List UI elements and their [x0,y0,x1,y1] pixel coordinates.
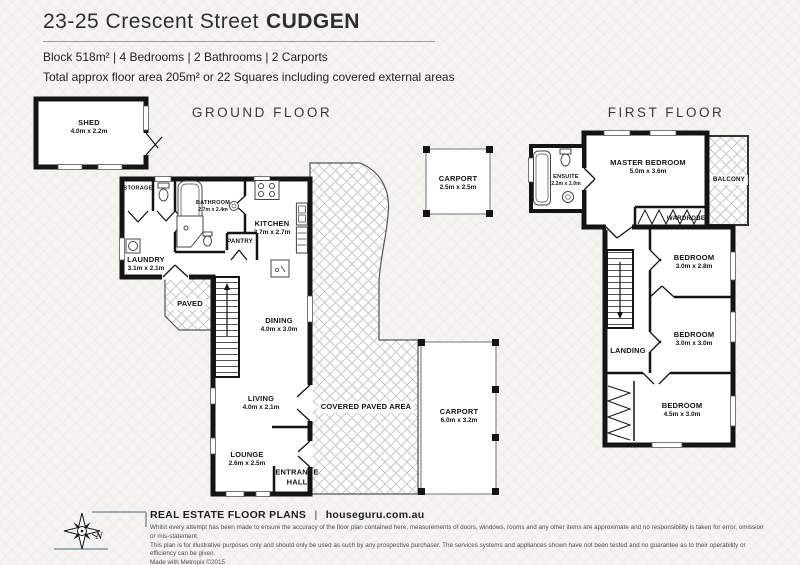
room-dims: 6.0m x 3.2m [440,417,478,425]
brand-name: REAL ESTATE FLOOR PLANS [150,509,306,521]
room-label-carport-side: CARPORT 6.0m x 3.2m [440,407,478,425]
room-label-shed: SHED 4.0m x 2.2m [71,118,108,136]
header: 23-25 Crescent StreetCUDGEN Block 518m² … [43,10,455,84]
room-label-landing: LANDING [610,346,646,356]
room-name: BALCONY [713,176,745,184]
compass-rose-icon [54,512,146,549]
covered-paved-area-hatch [310,163,418,494]
room-dims: 4.0m x 3.0m [261,326,298,334]
room-name: KITCHEN [254,219,291,229]
floor-plan-drawing [0,0,800,565]
room-label-entrance-hall: ENTRANCE HALL [270,467,324,487]
room-label-ensuite: ENSUITE 2.2m x 2.0m [551,174,580,188]
compass-north-label: N [96,532,103,542]
street-address: 23-25 Crescent Street [43,10,259,33]
brand-line: REAL ESTATE FLOOR PLANS | houseguru.com.… [150,509,770,521]
room-label-living: LIVING 4.0m x 2.1m [243,394,280,412]
room-label-covered-paved-area: COVERED PAVED AREA [318,401,415,413]
room-dims: 2.2m x 2.0m [551,181,580,188]
first-floor-stairs [607,250,633,328]
ground-floor-stairs [215,277,239,377]
room-name: DINING [261,316,298,326]
page-title: 23-25 Crescent StreetCUDGEN [43,10,455,34]
room-dims: 3.1m x 2.1m [127,265,165,273]
disclaimer-line-1: Whilst every attempt has been made to en… [150,524,770,542]
room-label-kitchen: KITCHEN 3.7m x 2.7m [254,219,291,237]
room-name: WARDROBE [667,215,705,223]
floor-plan-page: 23-25 Crescent StreetCUDGEN Block 518m² … [0,0,800,565]
suburb-name: CUDGEN [266,10,360,33]
room-label-bedroom-3: BEDROOM 3.0m x 3.0m [674,330,715,348]
room-name: CARPORT [439,174,477,184]
ground-floor-title: GROUND FLOOR [192,105,332,120]
room-name: PANTRY [227,238,253,246]
room-dims: 4.0m x 2.2m [71,128,108,136]
property-summary: Block 518m² | 4 Bedrooms | 2 Bathrooms |… [43,50,455,64]
disclaimer-line-2: This plan is for illustrative purposes o… [150,542,770,560]
room-label-pantry: PANTRY [227,238,253,246]
room-name: LAUNDRY [127,255,165,265]
room-dims: 4.0m x 2.1m [243,404,280,412]
room-name: SHED [71,118,108,128]
ground-floor-plan [36,99,499,497]
first-floor-title: FIRST FLOOR [608,105,725,120]
room-name: ENTRANCE HALL [270,467,324,487]
floor-area-note: Total approx floor area 205m² or 22 Squa… [43,70,455,84]
room-name: BATHROOM [196,200,230,207]
room-dims: 3.7m x 2.7m [254,229,291,237]
room-name: LANDING [610,346,646,356]
room-name: PAVED [177,299,203,309]
room-name: LIVING [243,394,280,404]
room-label-storage: STORAGE [124,185,153,192]
room-label-laundry: LAUNDRY 3.1m x 2.1m [127,255,165,273]
room-label-bedroom-4: BEDROOM 4.5m x 3.0m [662,401,703,419]
room-dims: 3.0m x 2.8m [674,263,715,271]
room-name: CARPORT [440,407,478,417]
room-name: LOUNGE [229,450,266,460]
disclaimer: Whilst every attempt has been made to en… [150,524,770,565]
room-name: MASTER BEDROOM [610,158,686,168]
room-name: BEDROOM [662,401,703,411]
room-name: STORAGE [124,185,153,192]
footer: REAL ESTATE FLOOR PLANS | houseguru.com.… [150,509,770,565]
room-label-paved: PAVED [174,298,206,310]
room-label-master-bedroom: MASTER BEDROOM 5.0m x 3.6m [610,158,686,176]
room-dims: 2.6m x 2.5m [229,460,266,468]
title-divider [43,41,435,42]
room-name: BEDROOM [674,330,715,340]
room-name: BEDROOM [674,253,715,263]
room-name: ENSUITE [551,174,580,181]
disclaimer-line-3: Made with Metropix ©2015 [150,559,770,565]
website-url: houseguru.com.au [326,509,425,521]
room-dims: 2.5m x 2.5m [439,184,477,192]
room-label-balcony: BALCONY [710,175,748,185]
room-label-wardrobe: WARDROBE [667,215,705,223]
room-dims: 5.0m x 3.6m [610,168,686,176]
room-label-bathroom: BATHROOM 2.7m x 2.4m [196,200,230,214]
room-dims: 3.0m x 3.0m [674,340,715,348]
room-label-bedroom-2: BEDROOM 3.0m x 2.8m [674,253,715,271]
room-label-lounge: LOUNGE 2.6m x 2.5m [229,450,266,468]
room-name: COVERED PAVED AREA [321,402,412,412]
room-label-carport-front: CARPORT 2.5m x 2.5m [439,174,477,192]
room-dims: 2.7m x 2.4m [196,207,230,214]
brand-separator: | [314,509,317,521]
room-label-dining: DINING 4.0m x 3.0m [261,316,298,334]
room-dims: 4.5m x 3.0m [662,411,703,419]
